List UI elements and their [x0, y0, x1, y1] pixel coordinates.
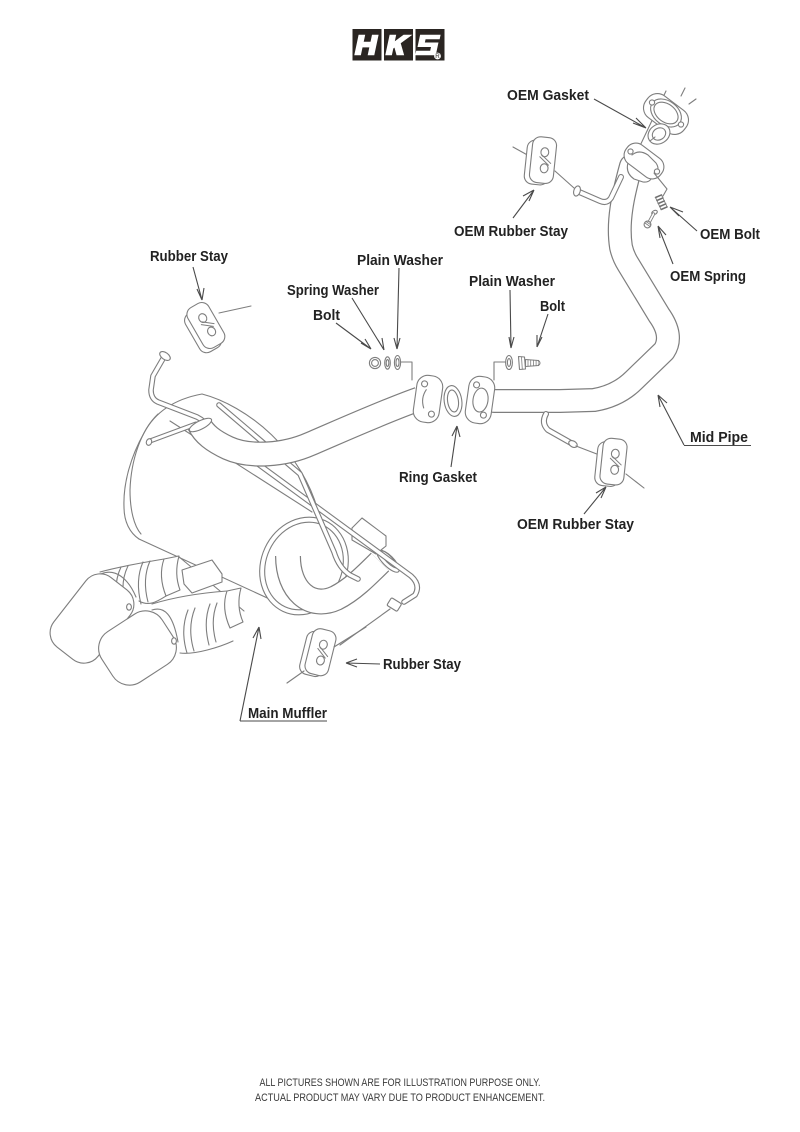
svg-text:Bolt: Bolt	[313, 307, 340, 324]
svg-text:R: R	[435, 53, 440, 60]
svg-text:OEM Rubber Stay: OEM Rubber Stay	[454, 223, 568, 240]
svg-text:Rubber Stay: Rubber Stay	[150, 248, 228, 265]
svg-text:OEM Rubber Stay: OEM Rubber Stay	[517, 516, 634, 533]
svg-text:Mid Pipe: Mid Pipe	[690, 429, 748, 446]
svg-text:Bolt: Bolt	[540, 298, 565, 315]
svg-text:Ring Gasket: Ring Gasket	[399, 469, 477, 486]
svg-text:Rubber Stay: Rubber Stay	[383, 656, 461, 673]
svg-text:OEM Bolt: OEM Bolt	[700, 226, 760, 243]
svg-text:OEM Gasket: OEM Gasket	[507, 87, 589, 104]
svg-text:ALL PICTURES SHOWN ARE FOR ILL: ALL PICTURES SHOWN ARE FOR ILLUSTRATION …	[260, 1077, 541, 1089]
svg-text:ACTUAL PRODUCT MAY VARY DUE TO: ACTUAL PRODUCT MAY VARY DUE TO PRODUCT E…	[255, 1092, 545, 1104]
svg-text:Spring Washer: Spring Washer	[287, 282, 379, 299]
svg-text:Plain Washer: Plain Washer	[469, 273, 555, 290]
svg-text:OEM Spring: OEM Spring	[670, 268, 746, 285]
svg-text:Main Muffler: Main Muffler	[248, 705, 327, 722]
svg-text:Plain Washer: Plain Washer	[357, 252, 443, 269]
